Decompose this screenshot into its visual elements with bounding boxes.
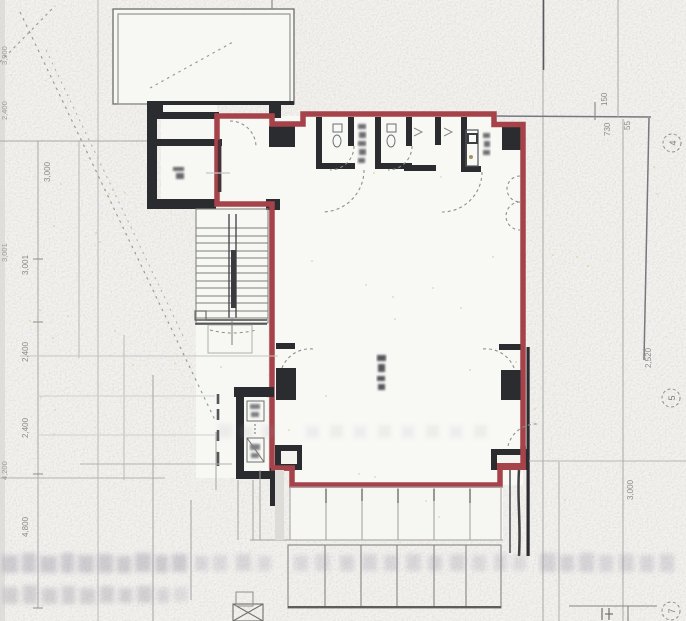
svg-text:5: 5 (667, 395, 677, 400)
svg-text:3,001: 3,001 (0, 243, 9, 262)
svg-text:4: 4 (668, 140, 678, 145)
svg-text:4,200: 4,200 (0, 461, 9, 480)
svg-text:150: 150 (600, 92, 609, 106)
svg-text:3,900: 3,900 (0, 46, 9, 65)
svg-text:2,520: 2,520 (644, 347, 653, 368)
svg-text:7: 7 (667, 608, 677, 613)
svg-text:4,800: 4,800 (21, 516, 30, 537)
svg-text:2,400: 2,400 (21, 417, 30, 438)
svg-text:3,000: 3,000 (43, 161, 52, 182)
svg-text:730: 730 (603, 122, 612, 136)
svg-text:3,001: 3,001 (21, 254, 30, 275)
svg-text:55: 55 (623, 121, 632, 130)
svg-text:3,000: 3,000 (626, 479, 635, 500)
svg-text:2,400: 2,400 (0, 101, 9, 120)
svg-text:2,400: 2,400 (21, 341, 30, 362)
